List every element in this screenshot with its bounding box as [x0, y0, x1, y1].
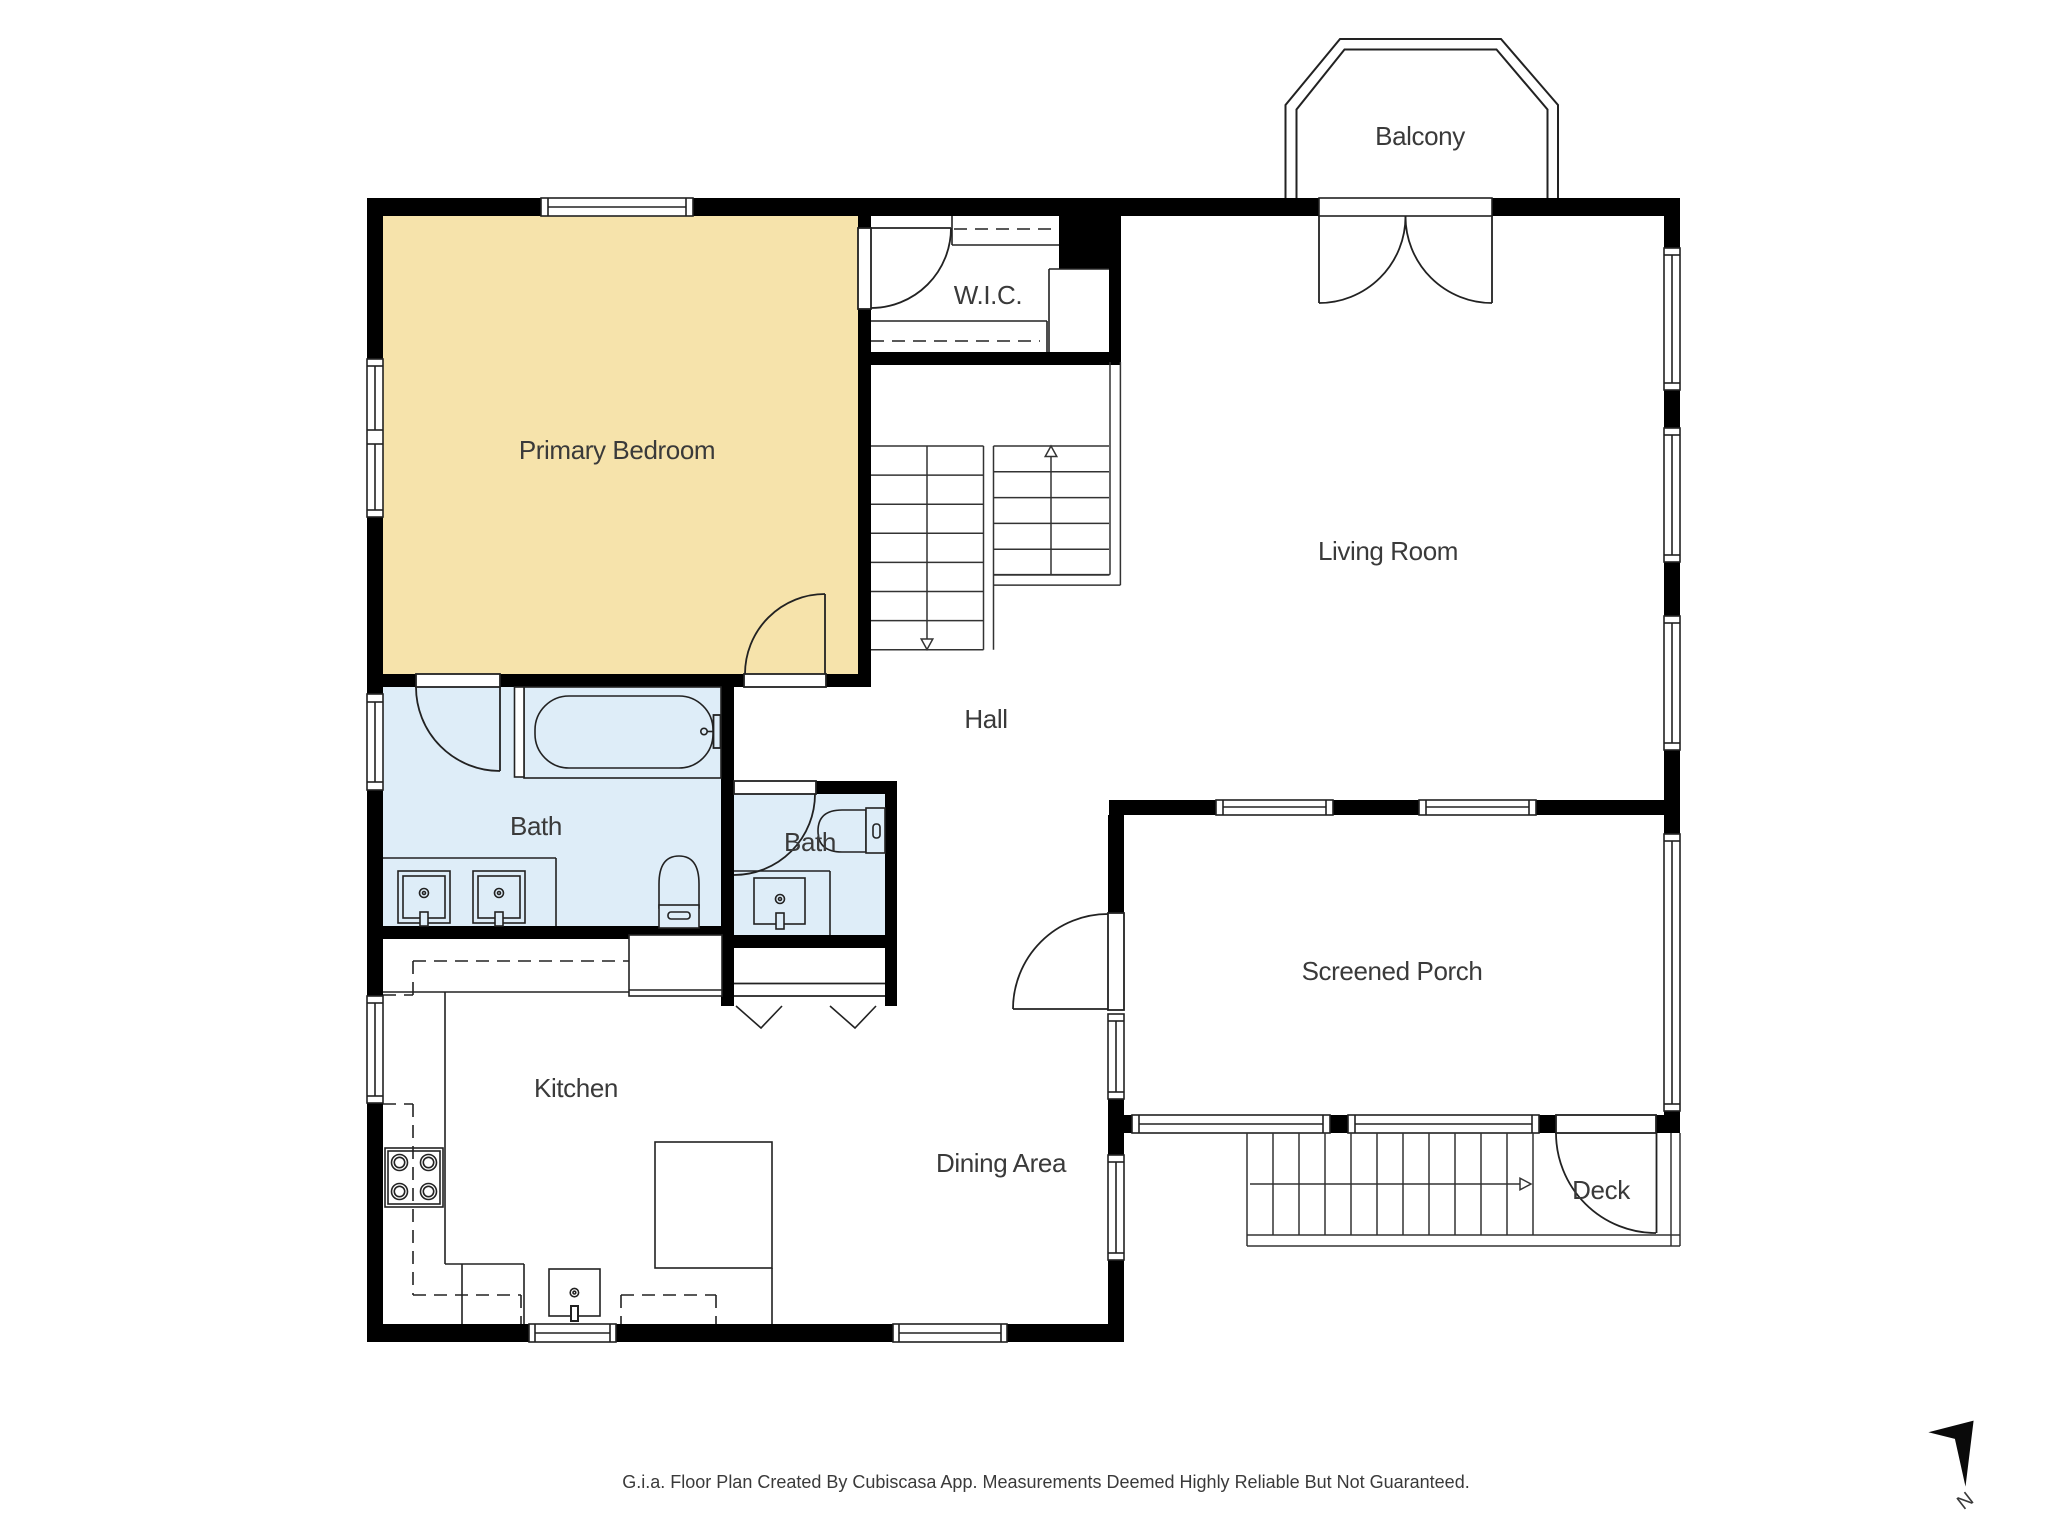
- svg-text:Primary Bedroom: Primary Bedroom: [519, 435, 715, 465]
- svg-text:Dining Area: Dining Area: [936, 1148, 1067, 1178]
- svg-text:Kitchen: Kitchen: [534, 1073, 618, 1103]
- svg-text:G.i.a. Floor Plan Created By C: G.i.a. Floor Plan Created By Cubiscasa A…: [622, 1472, 1469, 1492]
- svg-text:Deck: Deck: [1572, 1175, 1631, 1205]
- svg-text:W.I.C.: W.I.C.: [954, 280, 1022, 310]
- svg-text:Bath: Bath: [784, 827, 836, 857]
- svg-text:Balcony: Balcony: [1375, 121, 1465, 151]
- svg-text:Living Room: Living Room: [1318, 536, 1458, 566]
- svg-text:Screened Porch: Screened Porch: [1302, 956, 1483, 986]
- svg-text:Bath: Bath: [510, 811, 562, 841]
- svg-text:Hall: Hall: [964, 704, 1007, 734]
